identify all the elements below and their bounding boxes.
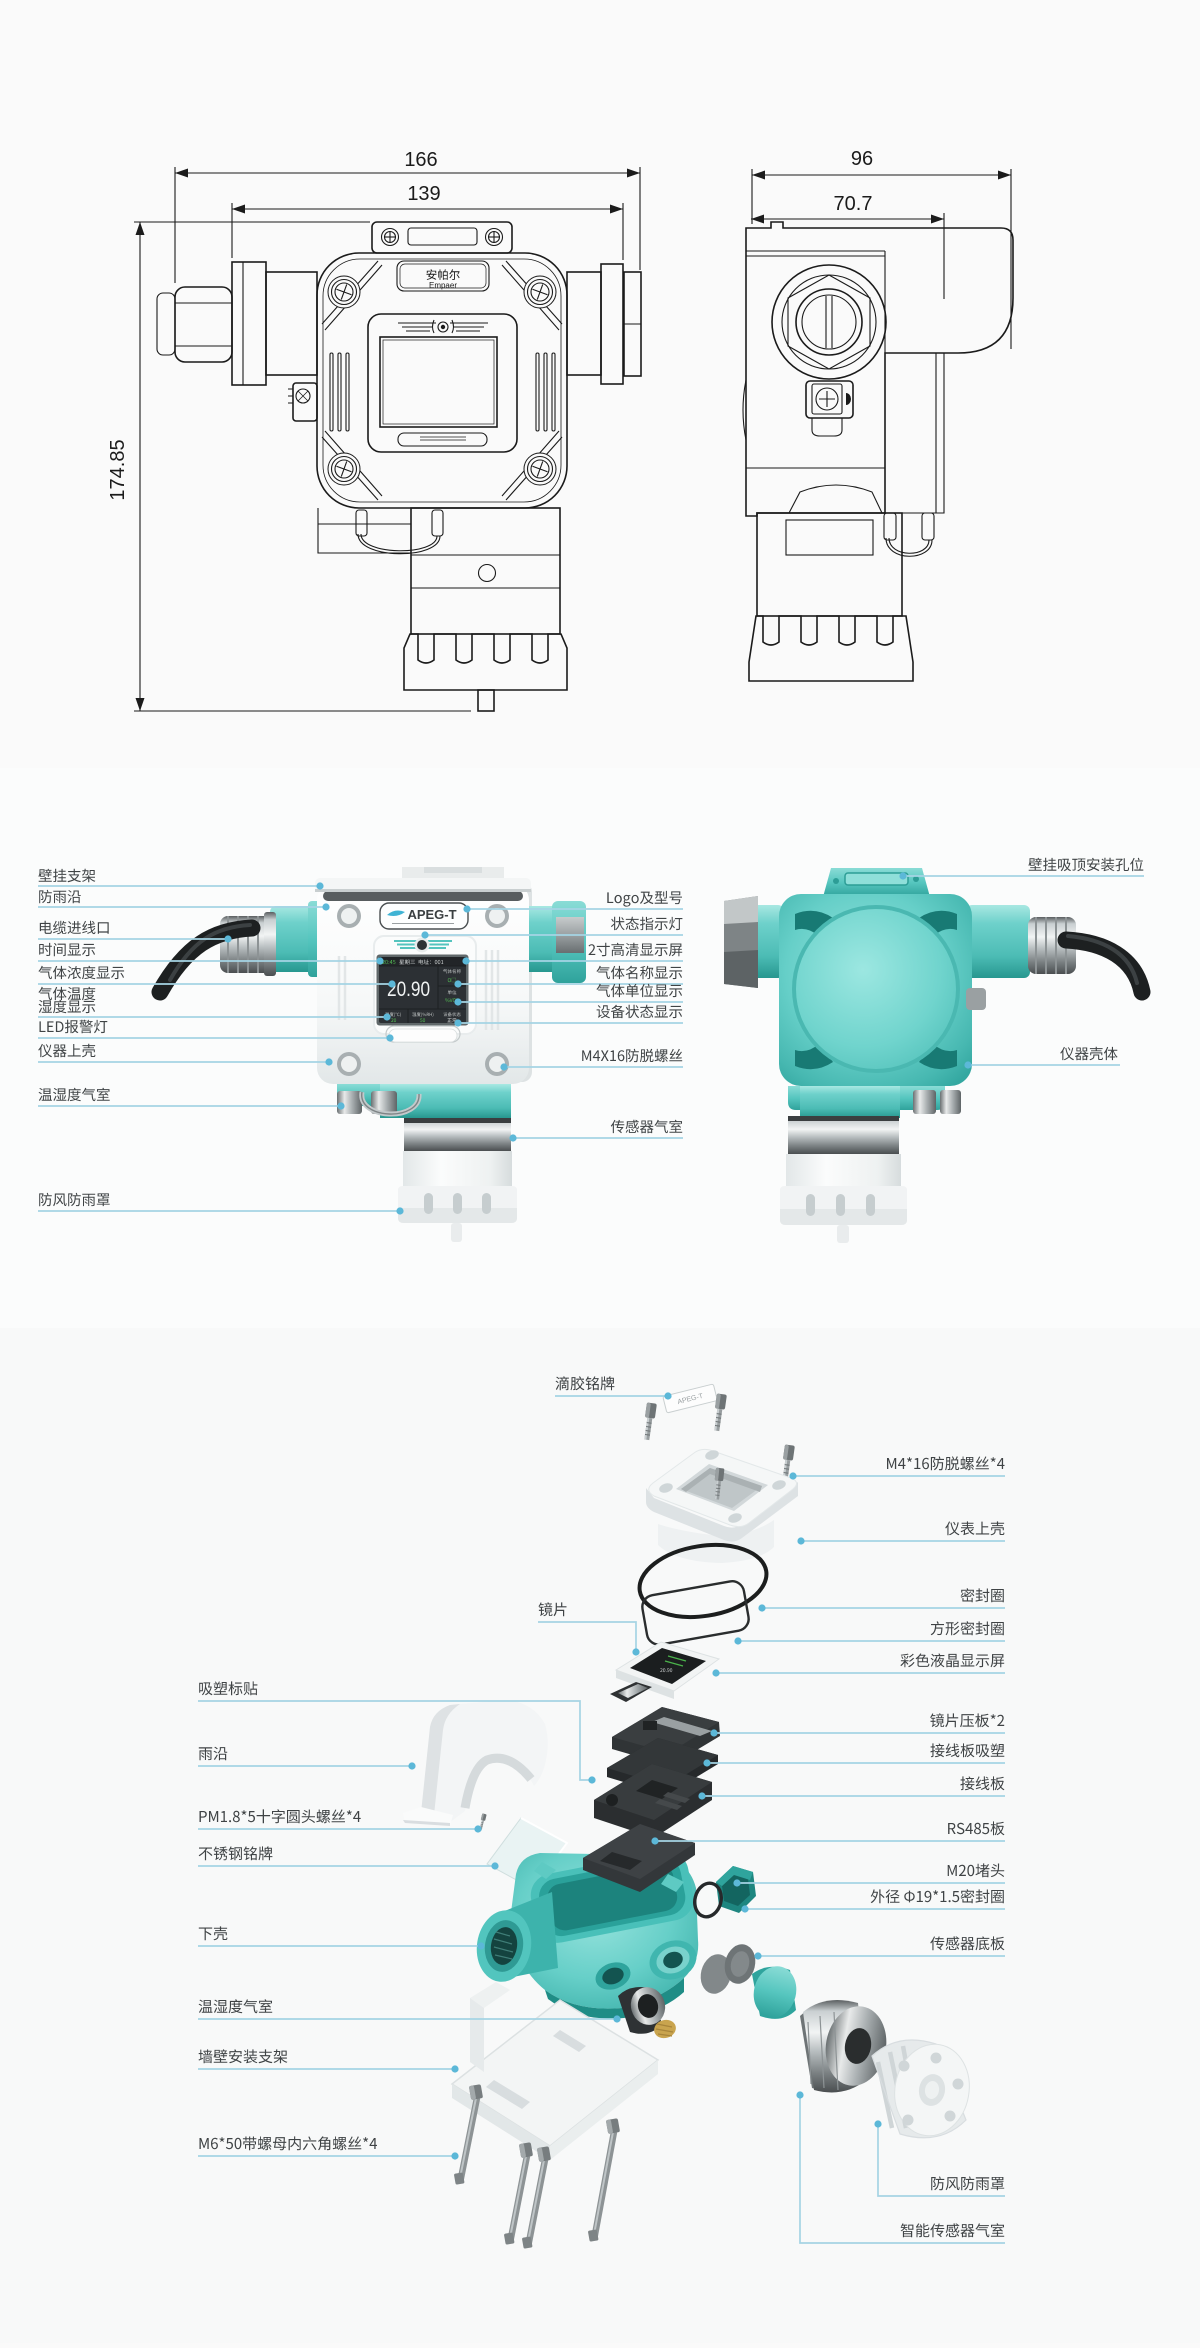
svg-text:96: 96 [851, 148, 873, 170]
svg-text:174.85: 174.85 [107, 439, 129, 500]
svg-text:70.7: 70.7 [834, 193, 873, 215]
svg-text:Empaer: Empaer [429, 281, 457, 290]
svg-text:166: 166 [404, 149, 437, 171]
svg-text:APEG-T: APEG-T [407, 907, 456, 922]
svg-text:139: 139 [407, 183, 440, 205]
